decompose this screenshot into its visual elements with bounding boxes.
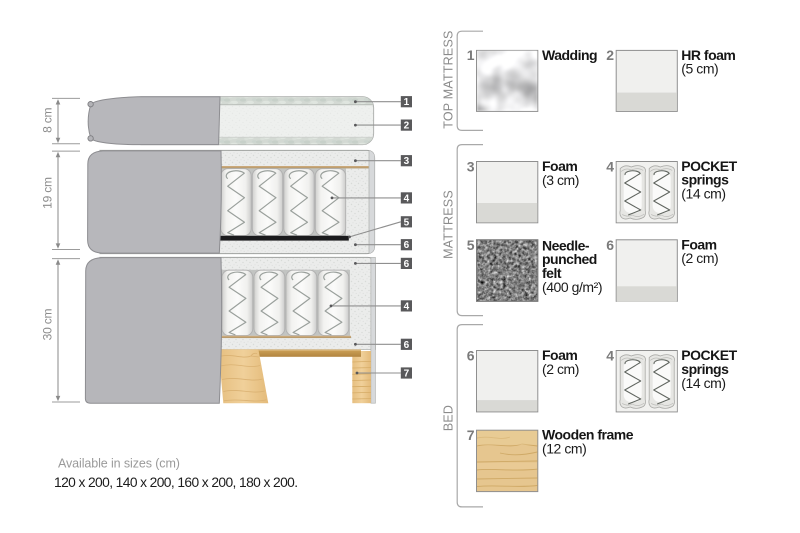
svg-text:3: 3 — [467, 158, 475, 174]
svg-text:5: 5 — [467, 237, 475, 253]
svg-text:7: 7 — [467, 427, 475, 443]
svg-text:2: 2 — [404, 121, 410, 132]
svg-text:3: 3 — [404, 156, 410, 167]
svg-text:(5 cm): (5 cm) — [681, 61, 718, 77]
svg-text:5: 5 — [404, 217, 410, 228]
svg-text:MATTRESS: MATTRESS — [442, 190, 456, 259]
svg-text:19 cm: 19 cm — [41, 177, 55, 209]
svg-text:30 cm: 30 cm — [41, 308, 55, 340]
svg-text:Wadding: Wadding — [542, 47, 597, 63]
svg-text:(400 g/m²): (400 g/m²) — [542, 279, 602, 295]
svg-text:4: 4 — [404, 301, 410, 312]
svg-text:1: 1 — [404, 97, 410, 108]
svg-text:(12 cm): (12 cm) — [542, 441, 586, 457]
svg-text:Available in sizes (cm): Available in sizes (cm) — [58, 456, 180, 470]
svg-text:(14 cm): (14 cm) — [681, 375, 725, 391]
svg-text:(2 cm): (2 cm) — [542, 361, 579, 377]
svg-text:6: 6 — [404, 240, 410, 251]
svg-text:TOP MATTRESS: TOP MATTRESS — [442, 30, 456, 128]
svg-text:(14 cm): (14 cm) — [681, 186, 725, 202]
svg-text:BED: BED — [442, 405, 456, 431]
svg-text:6: 6 — [467, 348, 475, 364]
svg-text:4: 4 — [606, 348, 614, 364]
svg-text:7: 7 — [404, 369, 410, 380]
svg-text:1: 1 — [467, 47, 475, 63]
svg-text:(3 cm): (3 cm) — [542, 172, 579, 188]
svg-text:(2 cm): (2 cm) — [681, 250, 718, 266]
svg-text:4: 4 — [606, 158, 614, 174]
svg-text:6: 6 — [404, 340, 410, 351]
svg-text:8 cm: 8 cm — [41, 108, 55, 133]
svg-text:6: 6 — [404, 259, 410, 270]
svg-text:4: 4 — [404, 193, 410, 204]
svg-text:6: 6 — [606, 237, 614, 253]
svg-text:120 x 200, 140 x 200, 160 x 20: 120 x 200, 140 x 200, 160 x 200, 180 x 2… — [54, 475, 297, 490]
svg-text:2: 2 — [606, 47, 614, 63]
